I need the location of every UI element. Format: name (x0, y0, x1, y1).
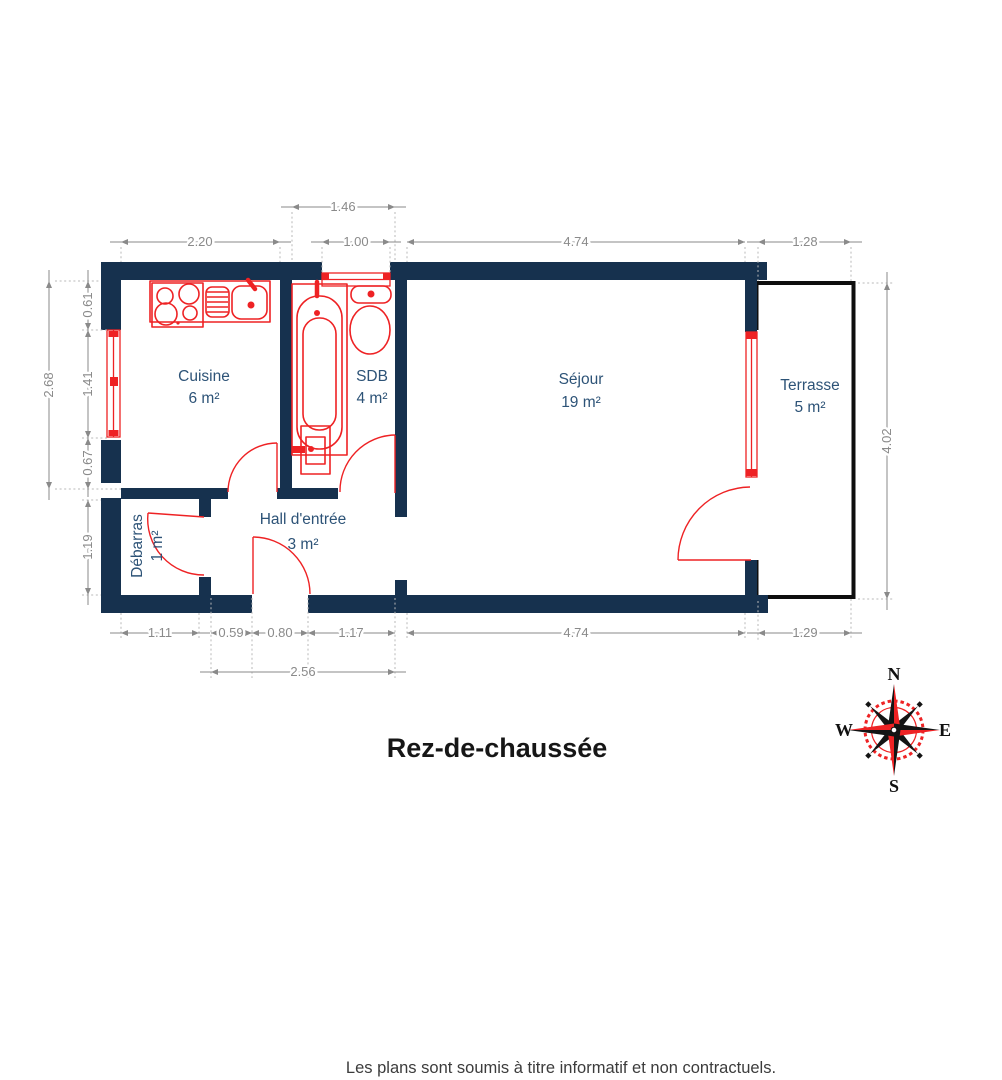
dim-top-sdb-window: 1.00 (343, 234, 368, 249)
dim-left-total: 2.68 (41, 372, 56, 397)
bathtub-drain (314, 310, 320, 316)
dim-bottom-hall-left: 0.59 (218, 625, 243, 640)
burner (179, 284, 199, 304)
window-sejour (746, 332, 757, 477)
floor-title: Rez-de-chaussée (387, 733, 608, 763)
dim-bottom-hall-right: 1.17 (338, 625, 363, 640)
room-area-sdb: 4 m² (357, 390, 388, 407)
dim-top-sejour: 4.74 (563, 234, 588, 249)
room-area-sejour: 19 m² (561, 394, 601, 411)
compass-rose: N E S W (835, 664, 951, 796)
wall-left-mid (101, 440, 121, 483)
washbasin-tap-icon (292, 446, 305, 453)
room-label-sdb: SDB (356, 368, 388, 385)
wall-sdb-bottom (277, 488, 338, 499)
wall-sejour-right-upper (745, 280, 757, 332)
compass-north-label: N (888, 664, 901, 684)
wall-debarras-upper-stub (199, 499, 211, 517)
room-area-debarras: 1 m² (149, 531, 166, 562)
dim-right-terrasse: 4.02 (879, 428, 894, 453)
room-area-terrasse: 5 m² (795, 399, 826, 416)
dim-left-lower: 0.67 (80, 450, 95, 475)
sink-drain (248, 302, 255, 309)
compass-south-label: S (889, 776, 899, 796)
wall-bottom-left (101, 595, 252, 613)
wall-left-upper (101, 262, 121, 330)
compass-hub (891, 727, 897, 733)
dim-bottom-hall-total: 2.56 (290, 664, 315, 679)
dim-left-upper: 0.61 (80, 292, 95, 317)
wall-hall-sejour-stub (395, 580, 407, 595)
wall-sdb-right (395, 280, 407, 517)
room-labels: Cuisine 6 m² SDB 4 m² Séjour 19 m² Terra… (129, 368, 840, 578)
door-cuisine (228, 443, 277, 492)
kitchen-fixtures (150, 280, 270, 327)
room-label-debarras: Débarras (129, 514, 146, 578)
door-sdb (340, 435, 395, 493)
dim-bottom-sejour: 4.74 (563, 625, 588, 640)
room-label-cuisine: Cuisine (178, 368, 230, 385)
room-area-hall: 3 m² (288, 536, 319, 553)
burner (183, 306, 197, 320)
dim-top-cuisine: 2.20 (187, 234, 212, 249)
wall-sejour-right-lower (745, 560, 757, 595)
doors (148, 435, 751, 594)
toilet-bowl (350, 306, 390, 354)
floorplan-canvas: 2.20 1.46 1.00 4.74 1.28 2.68 0.61 1.41 … (0, 0, 1002, 1080)
dim-left-window: 1.41 (80, 371, 95, 396)
window-cuisine (107, 330, 120, 437)
stove-knob (176, 321, 179, 324)
drainboard-ridges (207, 292, 228, 312)
wall-top-right (390, 262, 767, 280)
dim-bottom-terrasse: 1.29 (792, 625, 817, 640)
burner (157, 288, 173, 304)
toilet-button (368, 291, 375, 298)
room-area-cuisine: 6 m² (189, 390, 220, 407)
wall-bottom-right (308, 595, 768, 613)
room-label-hall: Hall d'entrée (260, 511, 347, 528)
dim-bottom-debarras: 1.11 (148, 625, 172, 640)
wall-sdb-left (280, 280, 292, 499)
room-label-sejour: Séjour (559, 371, 604, 388)
room-label-terrasse: Terrasse (780, 377, 839, 394)
bathtub-basin (303, 318, 336, 430)
dim-top-sdb-total: 1.46 (330, 199, 355, 214)
wall-cuisine-hall (121, 488, 228, 499)
dim-top-terrasse: 1.28 (792, 234, 817, 249)
dim-bottom-door: 0.80 (267, 625, 292, 640)
walls (101, 262, 768, 613)
door-terrasse (678, 487, 751, 560)
terrasse-outline (751, 283, 854, 597)
wall-top-left (101, 262, 322, 280)
dim-left-debarras: 1.19 (80, 534, 95, 559)
wall-debarras-lower-stub (199, 577, 211, 595)
compass-west-label: W (835, 720, 853, 740)
compass-east-label: E (939, 720, 951, 740)
washbasin-drain (308, 446, 314, 452)
disclaimer-text: Les plans sont soumis à titre informatif… (346, 1059, 776, 1077)
